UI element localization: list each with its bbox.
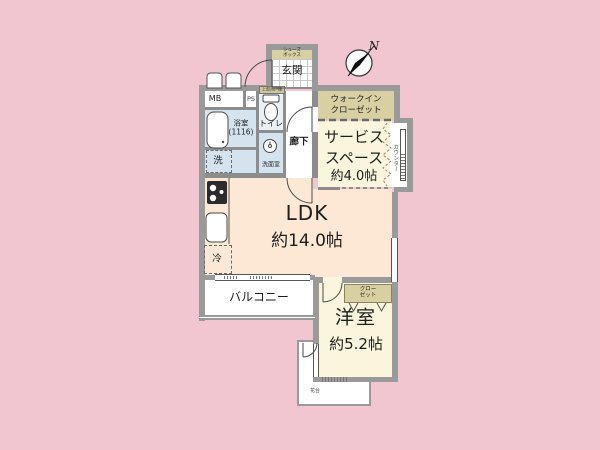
counter-label: カウンター bbox=[392, 144, 399, 172]
balcony-railing bbox=[199, 315, 315, 320]
wic-label: ウォークインクローゼット bbox=[330, 94, 381, 115]
wall-entrance-left bbox=[266, 44, 272, 91]
closet-label: クローゼット bbox=[360, 287, 377, 300]
mb-label: MB bbox=[209, 94, 221, 104]
door-gap-ldk bbox=[286, 173, 312, 178]
wall-bay-right bbox=[407, 118, 413, 192]
wall-bath-right bbox=[256, 91, 259, 175]
ps-label: PS bbox=[247, 96, 255, 104]
washer-label: 洗 bbox=[213, 155, 223, 166]
window-hatch-2 bbox=[250, 276, 272, 279]
service-space-label: サービススペース bbox=[324, 127, 384, 169]
flower-stand-label: 花台 bbox=[310, 388, 320, 394]
western-room-label: 洋室 bbox=[335, 307, 377, 330]
washroom-label: 洗面室 bbox=[262, 161, 280, 168]
bathroom-label: 浴室(1116) bbox=[229, 119, 254, 138]
toilet-label: トイレ bbox=[259, 119, 283, 129]
upper-cabinet-label: 上部吊戸棚 bbox=[262, 88, 282, 93]
counter-board-hatch bbox=[401, 152, 405, 179]
entrance-label: 玄関 bbox=[282, 65, 303, 78]
wall-mb-ps-divider bbox=[243, 91, 246, 108]
fridge-label: 冷 bbox=[212, 253, 222, 264]
wall-washroom-ldk bbox=[205, 173, 287, 178]
hallway-label: 廊下 bbox=[289, 136, 308, 147]
ldk-label: LDK bbox=[286, 201, 329, 225]
wall-top-right bbox=[312, 85, 400, 91]
wall-hall-right-lower bbox=[312, 132, 318, 178]
wall-entrance-right bbox=[312, 44, 318, 91]
floor-plan: 玄関 シューズボックス MB PS 上部吊戸棚 浴室(1116) 洗 トイレ 洗… bbox=[0, 0, 600, 450]
balcony-label: バルコニー bbox=[229, 290, 289, 304]
wall-hall-left bbox=[283, 91, 286, 175]
wall-western-right bbox=[392, 283, 398, 382]
door-gap-western bbox=[323, 277, 342, 283]
wall-toilet-washroom bbox=[256, 130, 284, 133]
service-space-size: 約4.0帖 bbox=[331, 169, 378, 185]
north-label: N bbox=[369, 39, 380, 53]
wall-left bbox=[199, 85, 205, 321]
window-western-left bbox=[313, 344, 319, 377]
wall-hall-right-upper bbox=[312, 91, 318, 107]
ldk-size: 約14.0帖 bbox=[271, 231, 343, 251]
wall-mb-bottom bbox=[205, 107, 259, 110]
room-hallway bbox=[286, 91, 312, 178]
door-gap-hall bbox=[312, 107, 318, 132]
window-hatch-1 bbox=[224, 276, 238, 279]
western-room-size: 約5.2帖 bbox=[329, 335, 383, 353]
window-ldk-right bbox=[391, 238, 398, 282]
wall-ldk-western-a bbox=[313, 277, 323, 283]
wall-ldk-western-b bbox=[342, 277, 398, 283]
shoebox-label: シューズボックス bbox=[283, 49, 301, 59]
window-western-bottom bbox=[322, 377, 348, 382]
